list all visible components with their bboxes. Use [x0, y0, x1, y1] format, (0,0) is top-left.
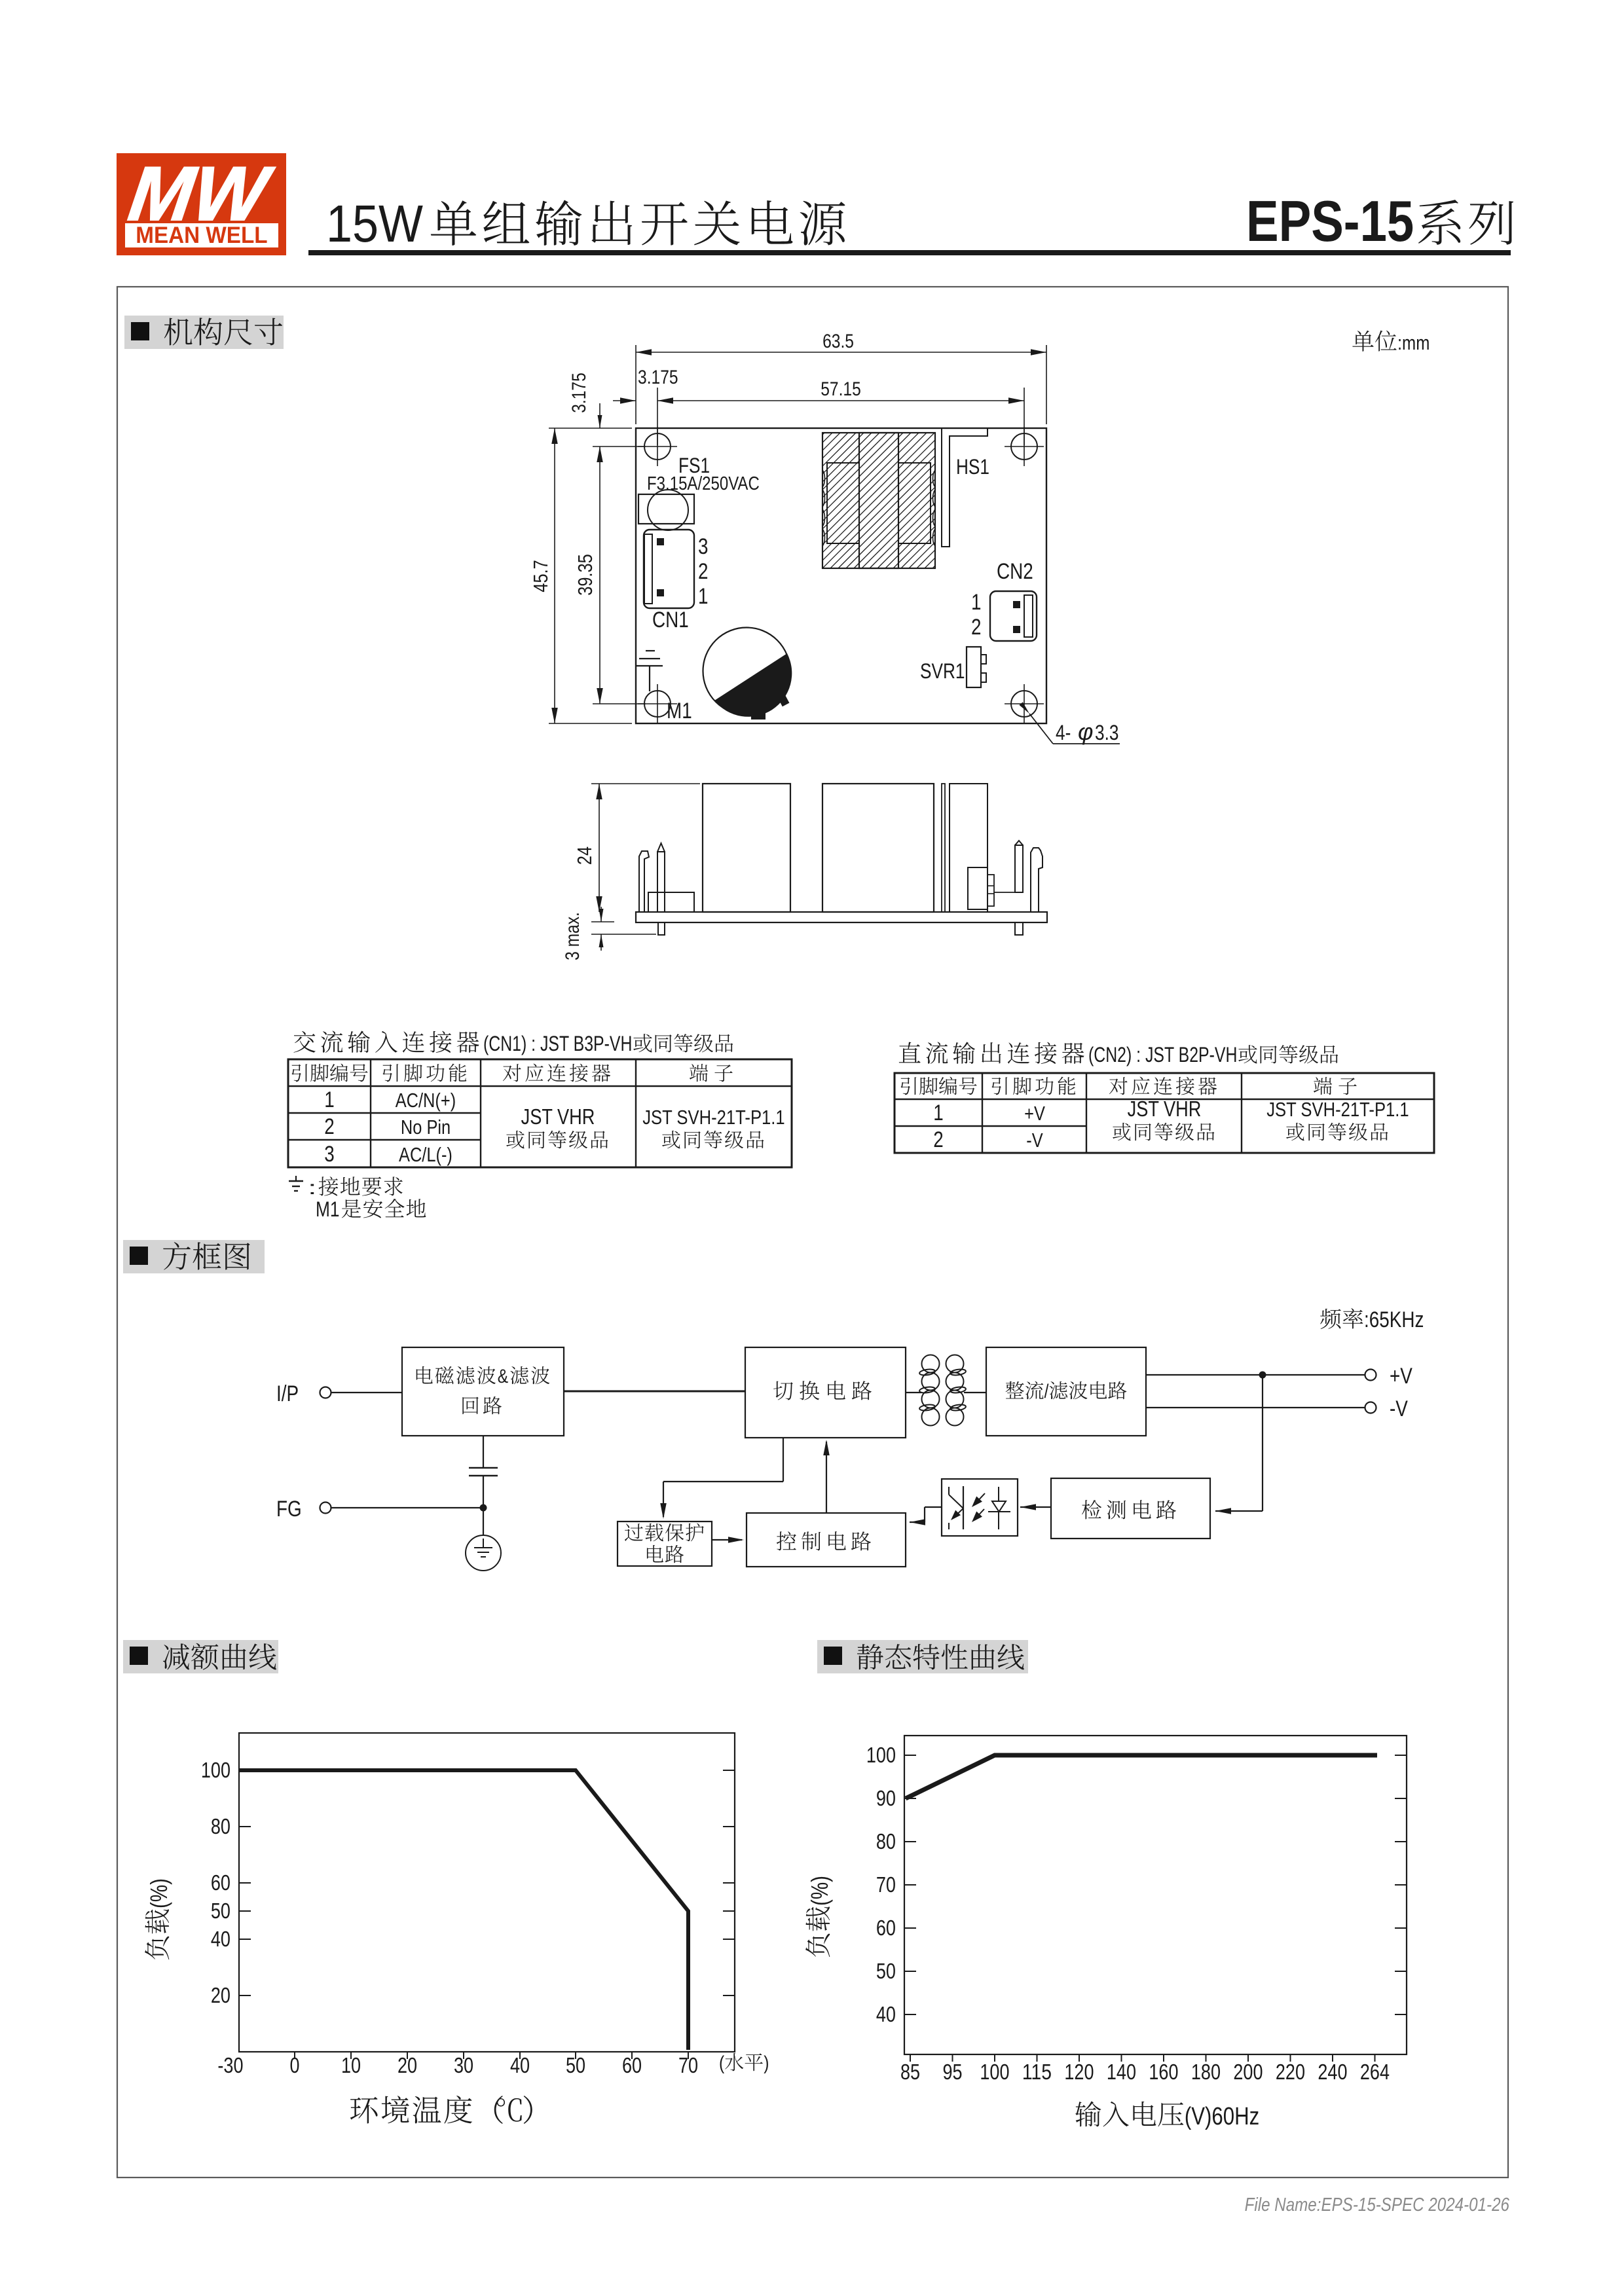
- svg-text:70: 70: [678, 2053, 698, 2077]
- svg-text:/: /: [1044, 1381, 1049, 1402]
- svg-text:(CN2) : JST B2P-VH: (CN2) : JST B2P-VH: [1088, 1043, 1237, 1066]
- svg-text:63.5: 63.5: [822, 331, 854, 352]
- svg-text:M1: M1: [667, 699, 692, 723]
- svg-text:100: 100: [866, 1743, 896, 1767]
- svg-text:100: 100: [980, 2060, 1009, 2084]
- svg-text:100: 100: [201, 1758, 231, 1782]
- svg-text:80: 80: [211, 1814, 231, 1838]
- svg-text:FG: FG: [276, 1497, 302, 1522]
- svg-text:120: 120: [1064, 2060, 1094, 2084]
- svg-text:&: &: [498, 1366, 508, 1387]
- svg-text:File Name:EPS-15-SPEC 2024-01: File Name:EPS-15-SPEC 2024-01-26: [1245, 2195, 1510, 2215]
- svg-text:240: 240: [1318, 2060, 1347, 2084]
- svg-text::65KHz: :65KHz: [1364, 1307, 1424, 1332]
- svg-text::: :: [308, 1177, 317, 1199]
- svg-text:φ: φ: [1078, 718, 1093, 745]
- svg-text:20: 20: [211, 1983, 231, 2007]
- svg-text:-V: -V: [1390, 1396, 1408, 1421]
- svg-text:57.15: 57.15: [821, 378, 861, 400]
- svg-text:I/P: I/P: [276, 1381, 299, 1406]
- svg-text:1: 1: [933, 1101, 944, 1125]
- svg-text:15W: 15W: [326, 194, 423, 253]
- svg-text:1: 1: [971, 590, 982, 615]
- svg-text:60: 60: [876, 1916, 896, 1940]
- svg-text:140: 140: [1107, 2060, 1136, 2084]
- svg-text:(%): (%): [145, 1878, 172, 1908]
- svg-text:95: 95: [943, 2060, 963, 2084]
- svg-text:60: 60: [211, 1870, 231, 1895]
- svg-text:45.7: 45.7: [529, 560, 552, 592]
- svg-text:39.35: 39.35: [574, 554, 597, 596]
- svg-text:3.3: 3.3: [1095, 721, 1119, 744]
- svg-text:3.175: 3.175: [638, 367, 678, 388]
- svg-text:-30: -30: [217, 2053, 243, 2077]
- svg-text:JST SVH-21T-P1.1: JST SVH-21T-P1.1: [1266, 1098, 1409, 1121]
- svg-text:10: 10: [341, 2053, 361, 2077]
- svg-text:F3.15A/250VAC: F3.15A/250VAC: [647, 473, 760, 494]
- svg-text:3.175: 3.175: [568, 373, 590, 413]
- svg-text:50: 50: [566, 2053, 585, 2077]
- svg-text:2: 2: [933, 1127, 944, 1152]
- svg-text:JST VHR: JST VHR: [1128, 1097, 1202, 1121]
- svg-text:50: 50: [211, 1899, 231, 1923]
- svg-text:(CN1) : JST B3P-VH: (CN1) : JST B3P-VH: [483, 1032, 632, 1055]
- svg-text:-V: -V: [1026, 1129, 1043, 1152]
- svg-text:2: 2: [324, 1114, 335, 1139]
- svg-text:3: 3: [698, 534, 709, 559]
- svg-text:264: 264: [1360, 2060, 1390, 2084]
- svg-text:): ): [764, 2052, 769, 2074]
- svg-text:40: 40: [211, 1927, 231, 1951]
- svg-text:40: 40: [510, 2053, 530, 2077]
- svg-text:+V: +V: [1024, 1102, 1045, 1125]
- svg-text:4-: 4-: [1056, 721, 1071, 744]
- svg-text:30: 30: [454, 2053, 473, 2077]
- svg-text:CN2: CN2: [997, 559, 1033, 584]
- svg-text::mm: :mm: [1397, 331, 1430, 354]
- svg-text:24: 24: [573, 847, 596, 865]
- svg-text:90: 90: [876, 1786, 896, 1810]
- svg-text:2: 2: [698, 559, 709, 584]
- svg-text:HS1: HS1: [956, 455, 989, 479]
- svg-text:70: 70: [876, 1872, 896, 1897]
- svg-text:MEAN WELL: MEAN WELL: [136, 223, 267, 248]
- svg-text:2: 2: [971, 615, 982, 640]
- svg-text:40: 40: [876, 2002, 896, 2026]
- svg-text:20: 20: [397, 2053, 417, 2077]
- svg-text:+V: +V: [1390, 1364, 1412, 1389]
- svg-text:80: 80: [876, 1829, 896, 1853]
- svg-text:(V)60Hz: (V)60Hz: [1185, 2103, 1259, 2130]
- svg-text:1: 1: [698, 584, 709, 609]
- svg-text:3 max.: 3 max.: [562, 912, 583, 960]
- svg-text:AC/L(-): AC/L(-): [399, 1143, 452, 1166]
- svg-text:180: 180: [1191, 2060, 1221, 2084]
- svg-text:AC/N(+): AC/N(+): [396, 1089, 456, 1112]
- svg-text:115: 115: [1022, 2060, 1052, 2084]
- svg-text:JST VHR: JST VHR: [521, 1104, 595, 1129]
- svg-text:85: 85: [900, 2060, 920, 2084]
- svg-text:JST SVH-21T-P1.1: JST SVH-21T-P1.1: [642, 1106, 784, 1129]
- svg-text:(: (: [719, 2052, 724, 2074]
- svg-text:M1: M1: [316, 1197, 340, 1221]
- svg-text:SVR1: SVR1: [920, 659, 965, 683]
- svg-text:200: 200: [1233, 2060, 1263, 2084]
- svg-text:0: 0: [290, 2053, 300, 2077]
- svg-text:CN1: CN1: [652, 608, 689, 632]
- svg-text:50: 50: [876, 1959, 896, 1983]
- svg-text:160: 160: [1149, 2060, 1178, 2084]
- svg-text:3: 3: [324, 1142, 335, 1167]
- svg-text:1: 1: [324, 1087, 335, 1112]
- svg-text:EPS-15: EPS-15: [1246, 189, 1414, 253]
- svg-text:220: 220: [1276, 2060, 1305, 2084]
- svg-text:60: 60: [622, 2053, 642, 2077]
- svg-text:No Pin: No Pin: [401, 1116, 451, 1139]
- svg-text:(%): (%): [806, 1876, 833, 1906]
